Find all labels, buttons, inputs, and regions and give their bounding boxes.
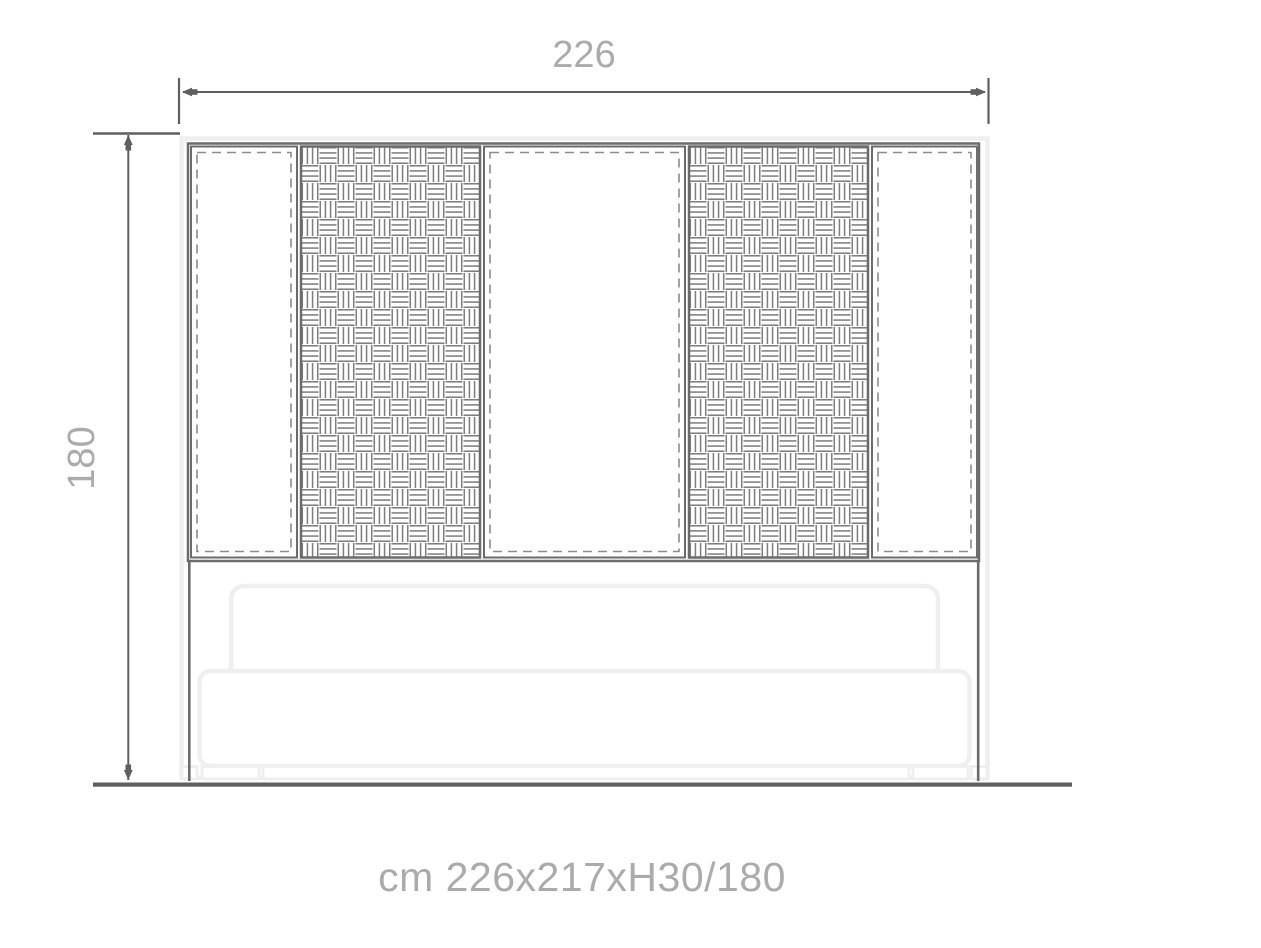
floor-line [93, 783, 1072, 787]
right-arrowhead [976, 88, 986, 97]
height-dimension: 180 [61, 134, 180, 781]
right-foot [913, 767, 968, 780]
panel-4-basket-weave [689, 147, 868, 558]
height-dimension-label: 180 [61, 426, 103, 489]
drawing-svg: 226 180 cm 226x217xH30/180 [0, 0, 1261, 948]
left-arrowhead [182, 88, 192, 97]
width-dimension-label: 226 [552, 34, 615, 76]
left-foot [202, 767, 259, 780]
bed-base [182, 586, 987, 779]
width-dimension: 226 [179, 34, 989, 124]
seat-cushion [200, 671, 970, 766]
down-arrowhead [124, 770, 133, 780]
base-feet [182, 767, 987, 780]
size-caption: cm 226x217xH30/180 [378, 854, 786, 900]
base-board [263, 767, 909, 780]
panel-2-basket-weave [301, 147, 480, 558]
up-arrowhead [124, 135, 133, 145]
furniture-technical-drawing: 226 180 cm 226x217xH30/180 [0, 0, 1261, 948]
